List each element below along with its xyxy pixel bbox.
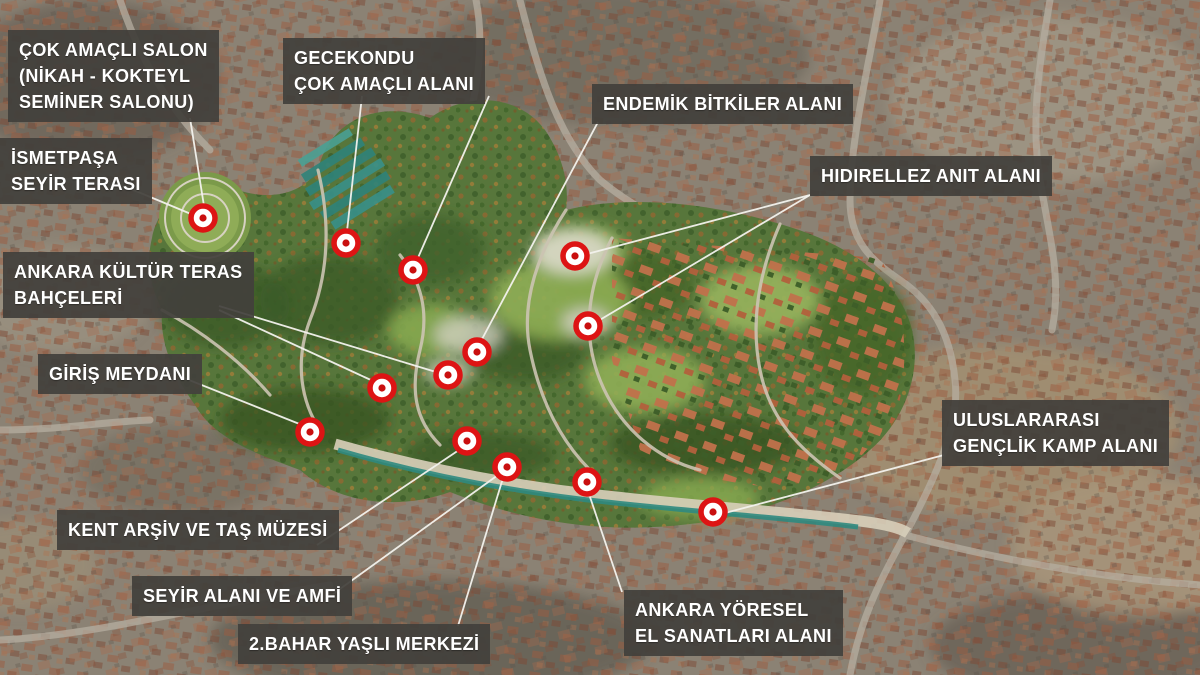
label-kultur-teras: ANKARA KÜLTÜR TERASBAHÇELERİ [3,252,254,318]
label-kent-arsiv: KENT ARŞİV VE TAŞ MÜZESİ [57,510,339,550]
label-cok-amacli-salon: ÇOK AMAÇLI SALON(NİKAH - KOKTEYLSEMİNER … [8,30,219,122]
label-yoresel-sanatlar: ANKARA YÖRESELEL SANATLARI ALANI [624,590,843,656]
label-seyir-alani: SEYİR ALANI VE AMFİ [132,576,352,616]
label-gecekondu: GECEKONDUÇOK AMAÇLI ALANI [283,38,485,104]
label-endemik-bitkiler: ENDEMİK BİTKİLER ALANI [592,84,853,124]
label-giris-meydani: GİRİŞ MEYDANI [38,354,202,394]
label-bahar-yasli: 2.BAHAR YAŞLI MERKEZİ [238,624,490,664]
label-hidirellez: HIDIRELLEZ ANIT ALANI [810,156,1052,196]
label-ismetpasa: İSMETPAŞASEYİR TERASI [0,138,152,204]
label-uluslararasi-kamp: ULUSLARARASIGENÇLİK KAMP ALANI [942,400,1169,466]
labels-layer: ÇOK AMAÇLI SALON(NİKAH - KOKTEYLSEMİNER … [0,0,1200,675]
park-masterplan-map: ÇOK AMAÇLI SALON(NİKAH - KOKTEYLSEMİNER … [0,0,1200,675]
